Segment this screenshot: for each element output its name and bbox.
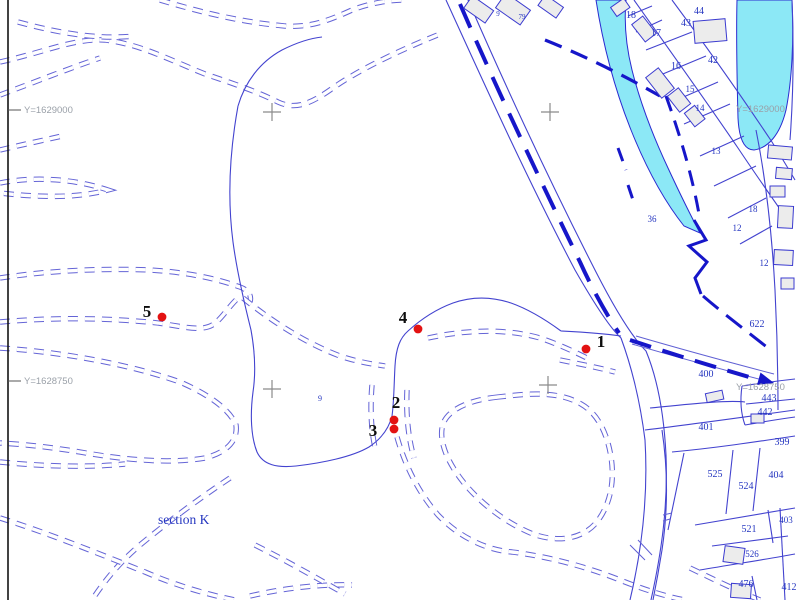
- parcel-number: 79: [519, 13, 527, 21]
- section-label: section K: [158, 512, 210, 527]
- street-right-edge: [756, 130, 778, 410]
- parcel-number: 521: [742, 524, 757, 535]
- road-marker: [630, 540, 652, 560]
- parcel-number: 403: [779, 515, 793, 525]
- parcel-number: 44: [694, 6, 704, 17]
- parcel-number: 9: [318, 394, 322, 403]
- grid-coordinate-label: Y=1629000: [736, 104, 785, 115]
- survey-point-dot: [582, 345, 591, 354]
- field-boundary-west-south: [230, 106, 561, 467]
- parcel-boundary-layer: [230, 0, 795, 600]
- parcel-number: 12: [760, 258, 769, 268]
- field-boundary-north: [238, 37, 322, 106]
- parcel-number: 14: [696, 103, 706, 113]
- grid-coordinate-label: Y=1628750: [736, 382, 785, 393]
- survey-point-dot: [390, 425, 399, 434]
- survey-point-dot: [158, 313, 167, 322]
- grid-coordinate-label: Y=1629000: [24, 105, 73, 116]
- survey-point-label: 3: [369, 421, 378, 440]
- survey-point-label: 1: [597, 332, 606, 351]
- parcel-number: 17: [651, 28, 661, 39]
- parcel-number: 36: [648, 214, 658, 224]
- parcel-number: 16: [671, 61, 681, 72]
- survey-point-dot: [390, 416, 399, 425]
- dashed-path-network: [0, 0, 760, 600]
- grid-coordinate-label: Y=1628750: [24, 376, 73, 387]
- parcel-number: 442: [758, 407, 773, 418]
- parcel-number: 526: [745, 549, 759, 559]
- parcel-number: 9: [496, 10, 500, 18]
- parcel-number: 43: [681, 18, 691, 29]
- survey-point-label: 5: [143, 302, 152, 321]
- parcel-number: 622: [750, 319, 765, 330]
- parcel-number: 476: [739, 579, 754, 590]
- parcel-number: 404: [769, 470, 784, 481]
- parcel-number: 524: [739, 481, 754, 492]
- parcel-number: 12: [733, 223, 742, 233]
- parcel-number: 401: [699, 422, 714, 433]
- parcel-numbers-layer: 4443181716421514133618121262240044344240…: [318, 6, 797, 593]
- survey-point-label: 2: [392, 393, 401, 412]
- survey-point-dot: [414, 325, 423, 334]
- boundary-along-road: [460, 4, 619, 333]
- survey-point-label: 4: [399, 308, 408, 327]
- section-label-layer: section K: [158, 512, 210, 527]
- parcel-number: 525: [708, 469, 723, 480]
- parcel-number: 18: [749, 204, 759, 214]
- road-edge-west: [446, 0, 646, 600]
- pond: [737, 0, 793, 150]
- parcel-number: 399: [775, 437, 790, 448]
- map-canvas: Y=1629000Y=1628750Y=1629000Y=1628750 444…: [0, 0, 800, 600]
- parcel-number: 13: [712, 146, 722, 156]
- parcel-number: 400: [699, 369, 714, 380]
- parcel-number: 443: [762, 393, 777, 404]
- parcel-number: 15: [686, 84, 696, 94]
- parcel-number: 42: [708, 55, 718, 66]
- cadastral-map-drawing: Y=1629000Y=1628750Y=1629000Y=1628750 444…: [0, 0, 800, 600]
- parcel-number: 412: [782, 582, 797, 593]
- parcel-number: 18: [626, 10, 636, 21]
- grid-labels-layer: Y=1629000Y=1628750Y=1629000Y=1628750: [8, 104, 785, 393]
